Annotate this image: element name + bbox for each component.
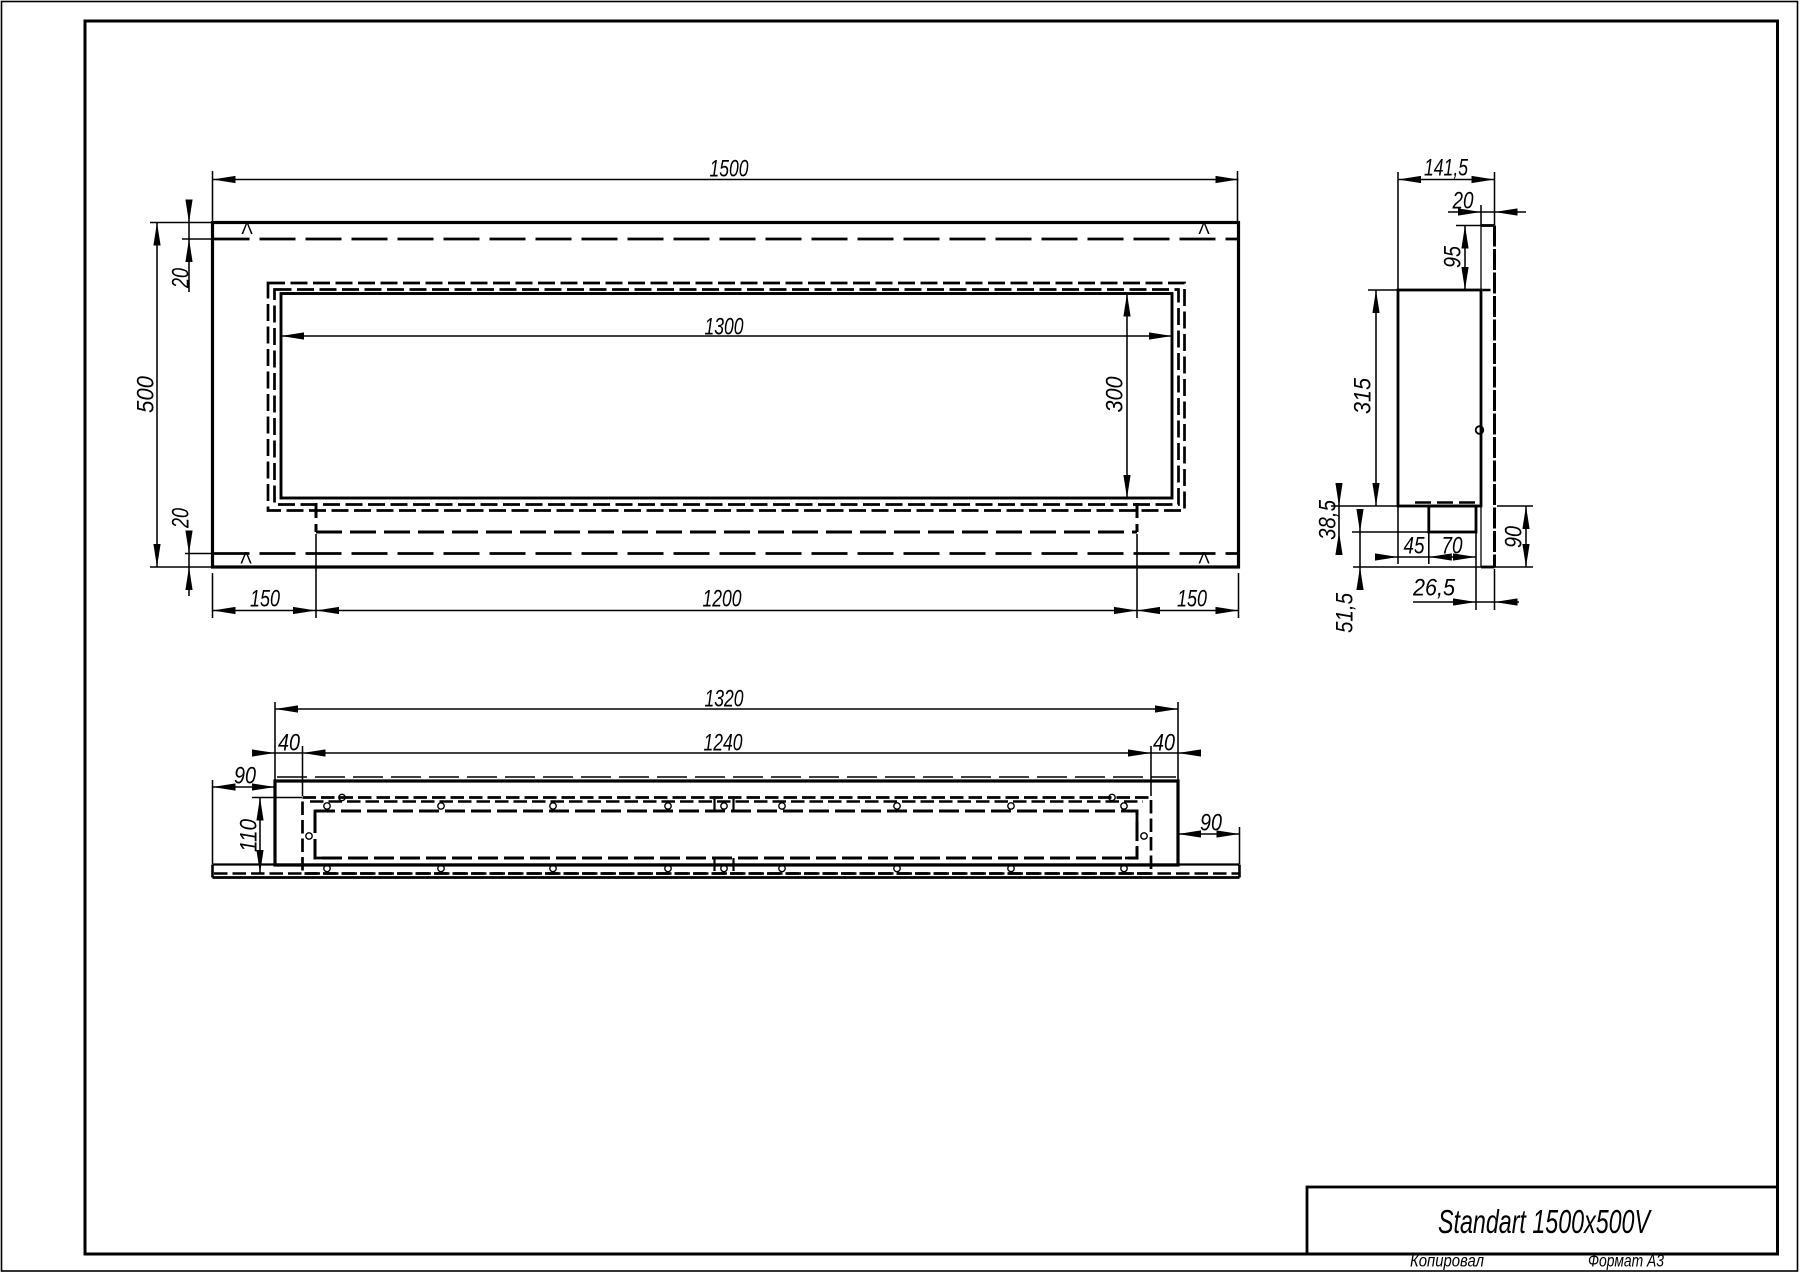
svg-text:141,5: 141,5: [1424, 155, 1468, 182]
svg-text:300: 300: [1102, 376, 1129, 413]
svg-text:26,5: 26,5: [1412, 575, 1455, 602]
svg-text:90: 90: [1200, 810, 1223, 837]
svg-text:45: 45: [1404, 533, 1426, 560]
svg-text:110: 110: [236, 818, 263, 852]
svg-text:Формат А3: Формат А3: [1588, 1251, 1664, 1271]
svg-text:Λ: Λ: [240, 549, 252, 568]
svg-text:90: 90: [1501, 525, 1528, 548]
svg-text:Λ: Λ: [1198, 549, 1210, 568]
svg-text:90: 90: [234, 763, 257, 790]
svg-text:Λ: Λ: [1198, 219, 1210, 238]
svg-text:38,5: 38,5: [1315, 499, 1342, 540]
svg-text:150: 150: [250, 586, 280, 613]
svg-text:1500: 1500: [710, 156, 749, 183]
svg-text:1200: 1200: [703, 586, 742, 613]
svg-text:500: 500: [133, 375, 160, 413]
svg-text:315: 315: [1350, 377, 1377, 414]
svg-text:Λ: Λ: [241, 219, 253, 238]
svg-text:Standart 1500x500V: Standart 1500x500V: [1438, 1203, 1652, 1240]
svg-text:1320: 1320: [705, 686, 744, 713]
svg-text:1300: 1300: [705, 314, 744, 341]
svg-text:70: 70: [1442, 533, 1464, 560]
svg-text:40: 40: [278, 730, 301, 757]
svg-text:40: 40: [1153, 730, 1176, 757]
svg-text:20: 20: [168, 268, 195, 289]
svg-text:150: 150: [1177, 586, 1207, 613]
svg-text:51,5: 51,5: [1332, 592, 1359, 633]
svg-text:95: 95: [1440, 245, 1467, 268]
svg-text:20: 20: [1452, 188, 1474, 215]
svg-text:20: 20: [168, 508, 195, 529]
svg-text:Копировал: Копировал: [1410, 1251, 1484, 1271]
svg-text:1240: 1240: [704, 730, 743, 757]
